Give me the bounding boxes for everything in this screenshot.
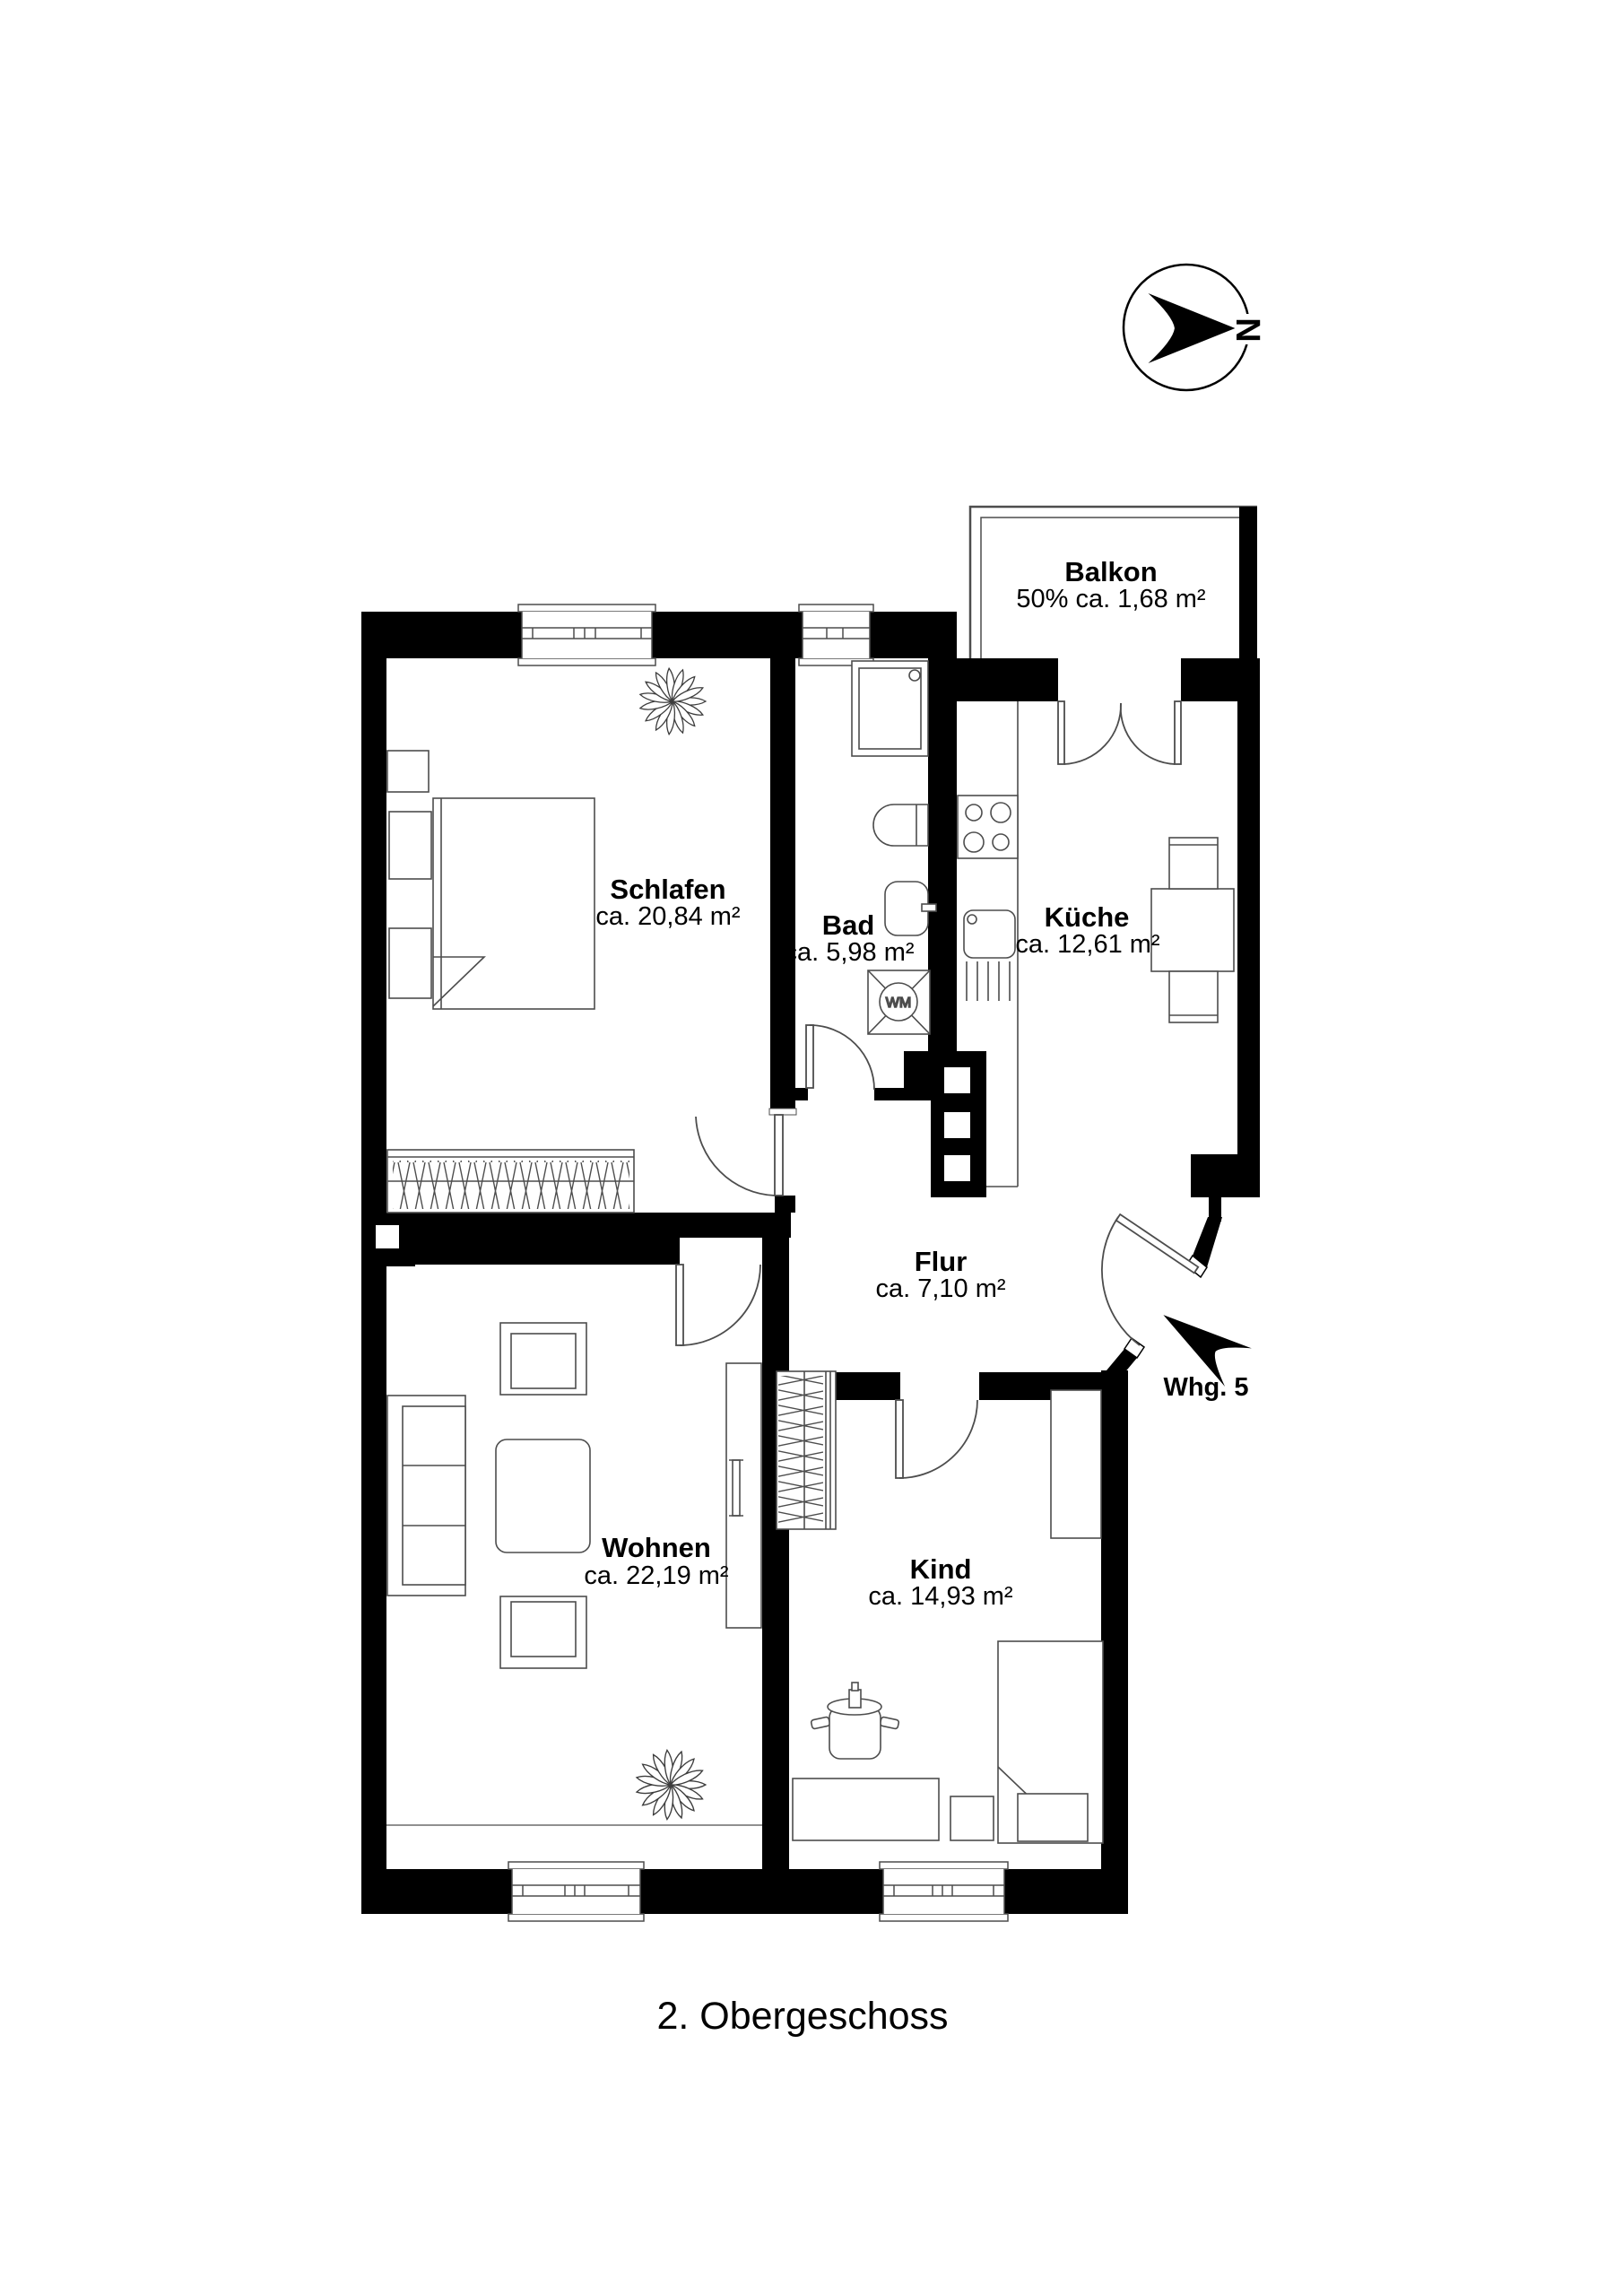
washing-machine: WM xyxy=(868,970,930,1034)
floor-caption: 2. Obergeschoss xyxy=(656,1995,948,2038)
toilet xyxy=(873,804,928,846)
wall-balcony-right xyxy=(1181,658,1260,701)
bed xyxy=(998,1641,1103,1843)
room-schlafen-furniture xyxy=(387,668,706,1213)
armchair xyxy=(500,1596,586,1668)
washing-machine-label: WM xyxy=(886,996,911,1011)
room-name: Flur xyxy=(915,1246,968,1277)
room-name: Kind xyxy=(910,1553,972,1585)
label-kueche: Küche ca. 12,61 m² xyxy=(1015,901,1160,959)
stove xyxy=(958,796,1018,858)
north-label: N xyxy=(1228,317,1266,342)
wardrobe xyxy=(387,1150,634,1213)
north-arrow-icon xyxy=(1149,293,1236,363)
wall-left xyxy=(361,612,386,1914)
nightstand xyxy=(389,928,431,998)
wardrobe xyxy=(777,1371,836,1529)
wall-balcony-left xyxy=(957,658,1058,701)
bed xyxy=(433,798,595,1009)
room-name: Schlafen xyxy=(610,874,725,905)
kitchen-sink xyxy=(964,910,1015,1001)
window-bad xyxy=(799,604,873,665)
label-wohnen: Wohnen ca. 22,19 m² xyxy=(584,1532,729,1590)
chair xyxy=(950,1796,994,1840)
plant-icon xyxy=(639,668,706,735)
shower xyxy=(852,661,928,756)
wall-schlafen-wohnen xyxy=(386,1213,791,1238)
plant-icon xyxy=(636,1750,706,1820)
window-wohnen xyxy=(508,1862,644,1921)
wall-bad-kueche xyxy=(928,658,957,1100)
window-kind xyxy=(880,1862,1008,1921)
wall-kind-right xyxy=(1101,1370,1128,1914)
door-wohnen xyxy=(676,1265,760,1345)
kitchen-table xyxy=(1151,889,1234,971)
chair xyxy=(1169,838,1218,889)
chair xyxy=(1169,971,1218,1022)
window-schlafen xyxy=(518,604,655,665)
room-area: ca. 22,19 m² xyxy=(584,1561,729,1590)
wall-flur-wohnen xyxy=(386,1238,680,1265)
nightstand xyxy=(387,751,429,792)
wall-right xyxy=(1237,701,1260,1155)
floorplan-drawing: N xyxy=(0,0,1623,2296)
room-bad-furniture: WM xyxy=(852,661,936,1034)
label-kind: Kind ca. 14,93 m² xyxy=(868,1553,1013,1611)
room-name: Balkon xyxy=(1064,556,1157,587)
sideboard xyxy=(726,1363,761,1628)
label-flur: Flur ca. 7,10 m² xyxy=(875,1246,1005,1303)
wall-balcony-side xyxy=(1239,507,1257,661)
room-area: ca. 14,93 m² xyxy=(868,1582,1013,1611)
door-bad xyxy=(806,1025,874,1090)
wall-schlafen-bad xyxy=(770,658,795,1115)
door-schlafen xyxy=(696,1115,783,1196)
label-balkon: Balkon 50% ca. 1,68 m² xyxy=(1016,556,1205,613)
wall-wohnen-kind xyxy=(762,1238,789,1888)
nightstand xyxy=(389,812,431,879)
sofa xyxy=(387,1396,465,1596)
room-area: 50% ca. 1,68 m² xyxy=(1016,585,1205,613)
floorplan-page: N xyxy=(0,0,1623,2296)
door-balcony xyxy=(1058,701,1181,764)
shelf xyxy=(1051,1390,1101,1538)
room-area: ca. 12,61 m² xyxy=(1015,930,1160,959)
room-area: ca. 7,10 m² xyxy=(875,1274,1005,1303)
desk xyxy=(793,1779,939,1840)
door-kind xyxy=(896,1400,977,1478)
armchair xyxy=(500,1323,586,1395)
entrance-label: Whg. 5 xyxy=(1163,1373,1248,1402)
compass: N xyxy=(1124,265,1266,390)
room-area: ca. 20,84 m² xyxy=(595,902,741,931)
coffee-table xyxy=(496,1439,590,1552)
potted-plant xyxy=(811,1683,899,1759)
label-schlafen: Schlafen ca. 20,84 m² xyxy=(595,874,741,931)
wall-bottom xyxy=(361,1869,1128,1914)
room-name: Bad xyxy=(822,909,875,941)
room-name: Wohnen xyxy=(602,1532,711,1563)
room-name: Küche xyxy=(1045,901,1130,933)
room-area: ca. 5,98 m² xyxy=(784,938,914,967)
